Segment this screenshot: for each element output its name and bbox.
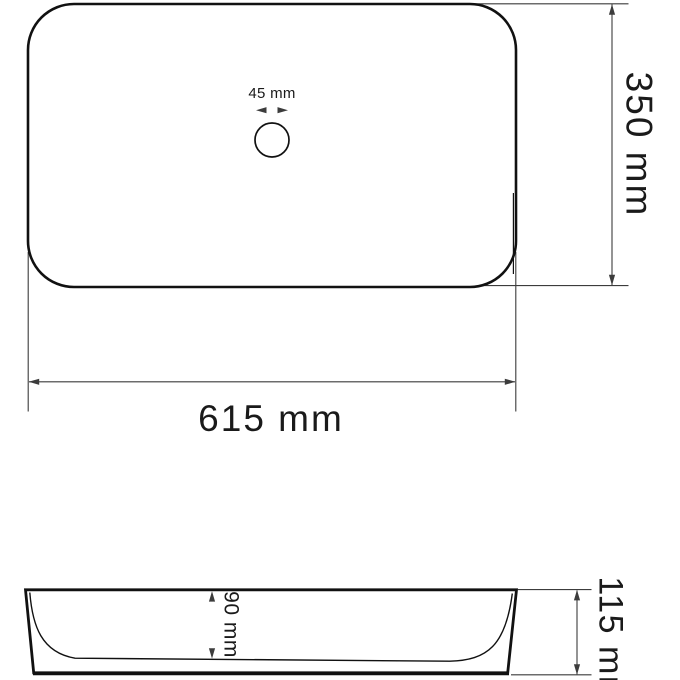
depth-arrow-bottom [609,275,615,286]
basin-width-label: 615 mm [198,398,344,439]
depth-arrow-top [609,4,615,15]
technical-drawing-canvas: 45 mm 615 mm 350 mm 90 mm 115 mm [0,0,680,680]
height-arrow-top [574,590,580,601]
top-view-depth-label: 350 mm [619,72,660,218]
height-arrow-bottom [574,664,580,675]
width-arrow-left [29,379,40,385]
inner-depth-label: 90 mm [220,591,243,658]
basin-outlines [26,4,517,673]
drain-diameter-label: 45 mm [248,85,295,102]
drain-hole [255,123,289,157]
width-arrow-right [505,379,516,385]
total-height-label: 115 mm [592,576,630,680]
technical-drawing: 45 mm 615 mm 350 mm 90 mm 115 mm [0,0,680,680]
